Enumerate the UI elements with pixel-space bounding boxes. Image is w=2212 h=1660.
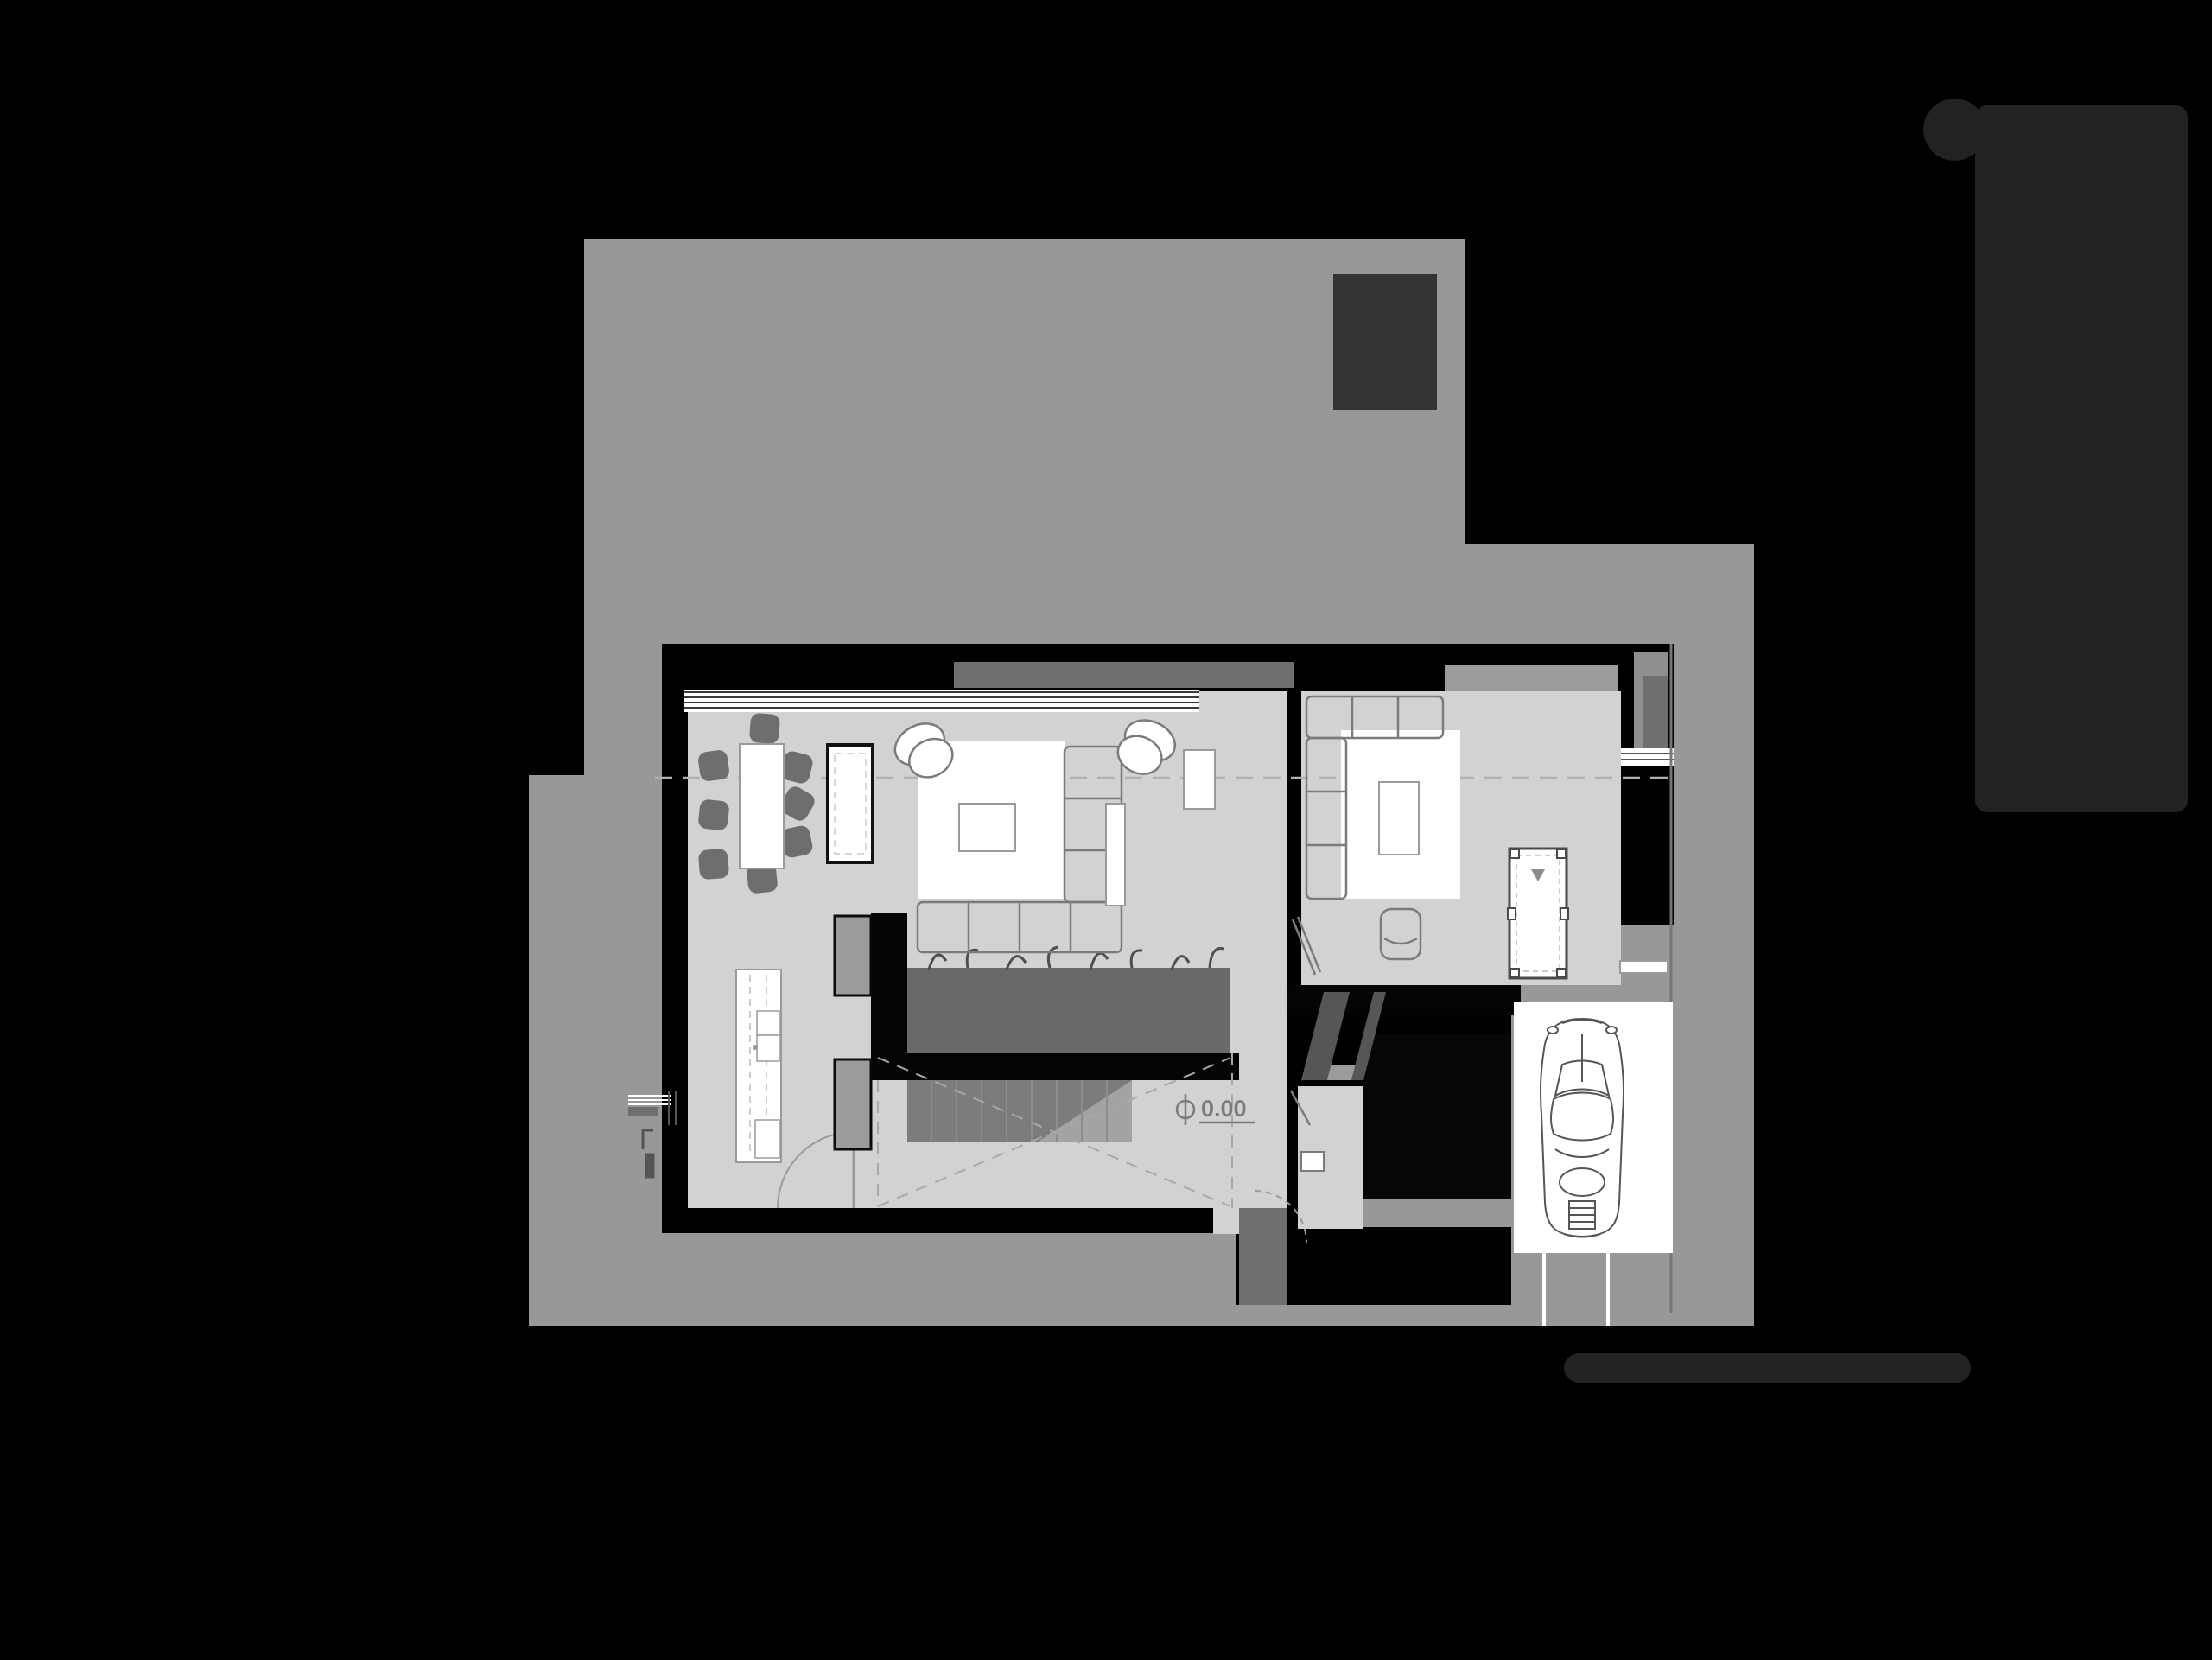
level-marker-text: 0.00 (1201, 1096, 1247, 1122)
faucet-icon (753, 1045, 758, 1050)
side-table (1184, 750, 1215, 809)
sliding-door-header (954, 662, 1294, 688)
car-icon (1541, 1019, 1624, 1237)
west-step-landing (628, 1107, 658, 1116)
front-driveway-2 (1236, 1305, 1514, 1326)
kitchen-sink (757, 1011, 779, 1035)
east-window (1621, 748, 1674, 766)
floor-plan-drawing: 0.00 (0, 0, 2212, 1660)
title-bar (1975, 105, 2188, 812)
family-coffee-table (1379, 782, 1419, 855)
console-shelf (1106, 804, 1125, 906)
planter-box (907, 968, 1230, 1053)
floor-plan-canvas: 0.00 (0, 0, 2212, 1660)
carport-gate (1620, 961, 1668, 973)
pocket-door-panel-inner (1643, 676, 1668, 754)
kitchen-sink-2 (757, 1035, 779, 1061)
staircase (907, 1080, 1132, 1142)
front-driveway (662, 1233, 1236, 1326)
stair-side-wall (871, 1053, 1239, 1080)
scale-bar (1564, 1353, 1971, 1383)
storage-block (1363, 1033, 1511, 1199)
roof-mass-right (1465, 544, 1754, 644)
kitchen-spine-wall (871, 913, 907, 1053)
left-terrace-band (529, 775, 662, 1326)
tall-cabinet-lower (835, 1059, 871, 1149)
entry-walk-strip (1239, 1208, 1287, 1305)
storage-south-strip (1363, 1199, 1511, 1227)
billiard-table (1508, 849, 1568, 978)
coffee-table (959, 804, 1015, 851)
sideboard-group (828, 745, 873, 862)
right-side-yard (1674, 644, 1754, 1326)
chimney (1333, 274, 1437, 410)
cooktop (755, 1120, 779, 1158)
dining-table (740, 744, 784, 868)
entry-threshold (1213, 1208, 1239, 1234)
tall-cabinet-upper (835, 916, 871, 995)
washer (1301, 1152, 1324, 1171)
family-room-header (1445, 665, 1618, 691)
left-margin-strip (584, 644, 662, 775)
